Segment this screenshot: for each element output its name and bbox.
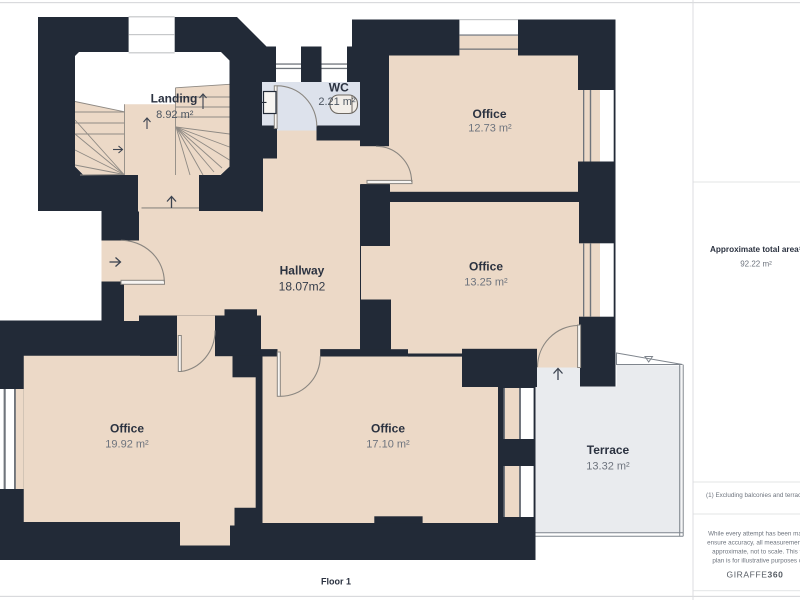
svg-text:Office: Office [472, 107, 506, 121]
svg-text:12.73 m²: 12.73 m² [468, 123, 512, 135]
svg-text:Landing: Landing [151, 92, 198, 106]
svg-text:Approximate total area¹: Approximate total area¹ [710, 245, 800, 254]
svg-text:GIRAFFE360: GIRAFFE360 [726, 570, 783, 580]
svg-text:8.92 m²: 8.92 m² [156, 109, 194, 121]
svg-text:92.22 m²: 92.22 m² [740, 260, 772, 269]
svg-text:Office: Office [469, 259, 503, 273]
svg-text:2.21 m²: 2.21 m² [318, 96, 356, 108]
svg-text:Floor 1: Floor 1 [321, 577, 351, 587]
svg-text:ensure accuracy, all measureme: ensure accuracy, all measurements are [707, 540, 800, 547]
svg-text:Office: Office [110, 421, 144, 435]
svg-text:19.92 m²: 19.92 m² [105, 438, 149, 450]
svg-text:WC: WC [329, 80, 349, 94]
svg-text:approximate, not to scale. Thi: approximate, not to scale. This floor [712, 549, 800, 556]
svg-text:Hallway: Hallway [280, 263, 325, 277]
svg-text:13.25 m²: 13.25 m² [464, 276, 508, 288]
svg-text:18.07m2: 18.07m2 [279, 279, 326, 293]
svg-text:plan is for illustrative purpo: plan is for illustrative purposes only. [712, 558, 800, 565]
svg-text:Office: Office [371, 421, 405, 435]
svg-text:Terrace: Terrace [587, 443, 630, 457]
svg-text:17.10 m²: 17.10 m² [366, 438, 410, 450]
svg-text:13.32 m²: 13.32 m² [586, 460, 630, 472]
svg-text:While every attempt has been m: While every attempt has been made to [708, 531, 800, 538]
svg-text:(1) Excluding balconies and te: (1) Excluding balconies and terraces [706, 492, 800, 499]
